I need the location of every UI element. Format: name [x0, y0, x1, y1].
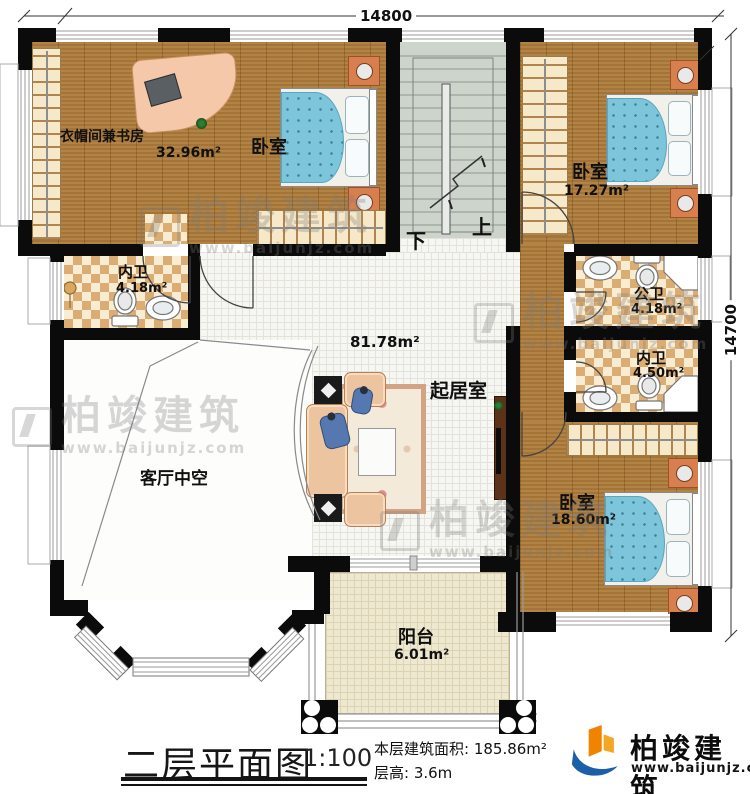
stairs-up-label: 上	[472, 216, 492, 238]
room-area-bath-public: 4.18m²	[631, 303, 682, 317]
room-label-balcony: 阳台	[398, 628, 434, 648]
dimension-right: 14700	[722, 300, 740, 360]
title-underline	[121, 777, 367, 781]
room-label-bath-left: 内卫	[118, 264, 148, 281]
room-label-bedroom-right: 卧室	[572, 163, 608, 183]
stairs	[400, 56, 506, 234]
title-underline	[121, 784, 367, 786]
void-outline	[82, 340, 320, 586]
room-label-cloak-study: 衣帽间兼书房	[60, 130, 144, 145]
room-label-bath-inner: 内卫	[636, 350, 666, 367]
door-arcs	[143, 192, 606, 456]
brand-logo-icon	[570, 724, 626, 782]
room-area-bedroom-right: 17.27m²	[564, 184, 629, 199]
dimension-top: 14800	[356, 7, 416, 25]
floor-plan-canvas: 14800 14700 衣帽间兼书房 32.96m² 卧室 卧室 17.27m²…	[0, 0, 750, 794]
room-area-bath-inner: 4.50m²	[633, 367, 684, 381]
room-label-bedroom-bottom: 卧室	[559, 494, 595, 514]
plan-floor-height-text: 层高: 3.6m	[374, 762, 452, 783]
plan-linework	[0, 0, 750, 794]
room-label-void: 客厅中空	[140, 470, 208, 489]
room-area-bath-left: 4.18m²	[116, 282, 167, 296]
room-area-living: 81.78m²	[350, 334, 420, 351]
room-label-living: 起居室	[430, 381, 487, 402]
walls	[18, 28, 712, 675]
room-label-bedroom-top: 卧室	[251, 138, 287, 158]
balcony-columns	[301, 700, 536, 734]
stairs-down-label: 下	[406, 230, 426, 252]
room-label-bath-public: 公卫	[634, 286, 664, 303]
plan-scale: 1:100	[303, 744, 372, 772]
brand-website: www.baijunjz.com	[631, 761, 750, 776]
room-area-cloak-study: 32.96m²	[156, 146, 221, 161]
room-area-balcony: 6.01m²	[394, 648, 449, 663]
windows	[18, 28, 712, 681]
room-area-bedroom-bottom: 18.60m²	[551, 513, 616, 528]
plan-area-text: 本层建筑面积: 185.86m²	[374, 738, 547, 759]
